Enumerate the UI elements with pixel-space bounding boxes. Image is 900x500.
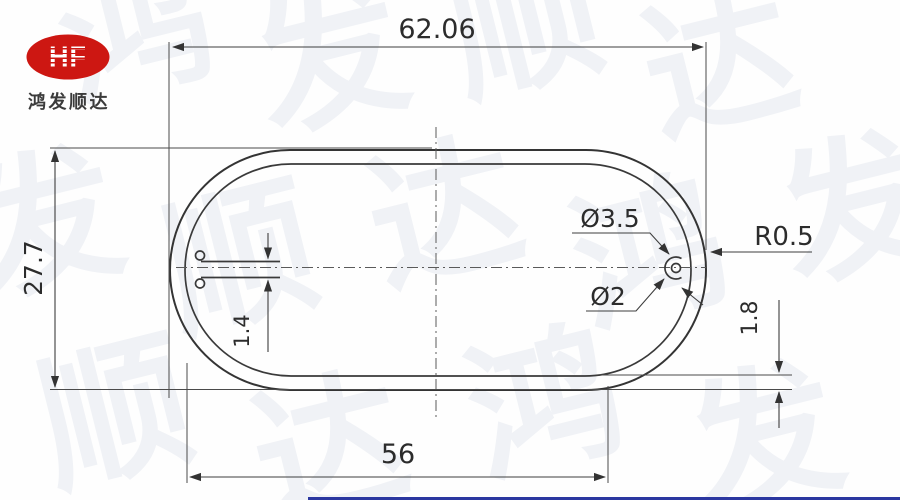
profile-outline bbox=[170, 150, 706, 390]
dim-tongue-thickness-value: 1.4 bbox=[230, 314, 254, 347]
callout-corner-radius-value: R0.5 bbox=[754, 222, 813, 252]
callout-boss-diameter-value: Ø3.5 bbox=[580, 204, 639, 233]
drawing-sheet: 鸿 发 顺 达 发 顺 达 鸿 发 顺 达 鸿 发 HF 鸿发顺达 bbox=[0, 0, 900, 500]
dim-bottom-width-value: 56 bbox=[381, 439, 415, 470]
dim-overall-width: 62.06 bbox=[173, 14, 703, 47]
dim-bottom-wall: 1.8 bbox=[738, 300, 779, 428]
dim-overall-width-value: 62.06 bbox=[398, 14, 475, 45]
technical-drawing: 62.06 27.7 56 1.8 1.4 Ø3.5 bbox=[0, 0, 900, 500]
callout-boss-diameter: Ø3.5 bbox=[572, 204, 669, 254]
dim-overall-height: 27.7 bbox=[19, 151, 55, 387]
callout-hole-diameter-value: Ø2 bbox=[590, 282, 626, 311]
callout-corner-radius: R0.5 bbox=[682, 222, 814, 305]
dim-overall-height-value: 27.7 bbox=[19, 240, 48, 296]
dim-tongue-thickness: 1.4 bbox=[230, 233, 268, 352]
callout-hole-diameter: Ø2 bbox=[586, 279, 664, 311]
dim-bottom-width: 56 bbox=[190, 439, 605, 477]
left-slot-feature bbox=[196, 251, 281, 288]
dim-bottom-wall-value: 1.8 bbox=[738, 301, 763, 336]
extension-lines bbox=[50, 42, 792, 483]
